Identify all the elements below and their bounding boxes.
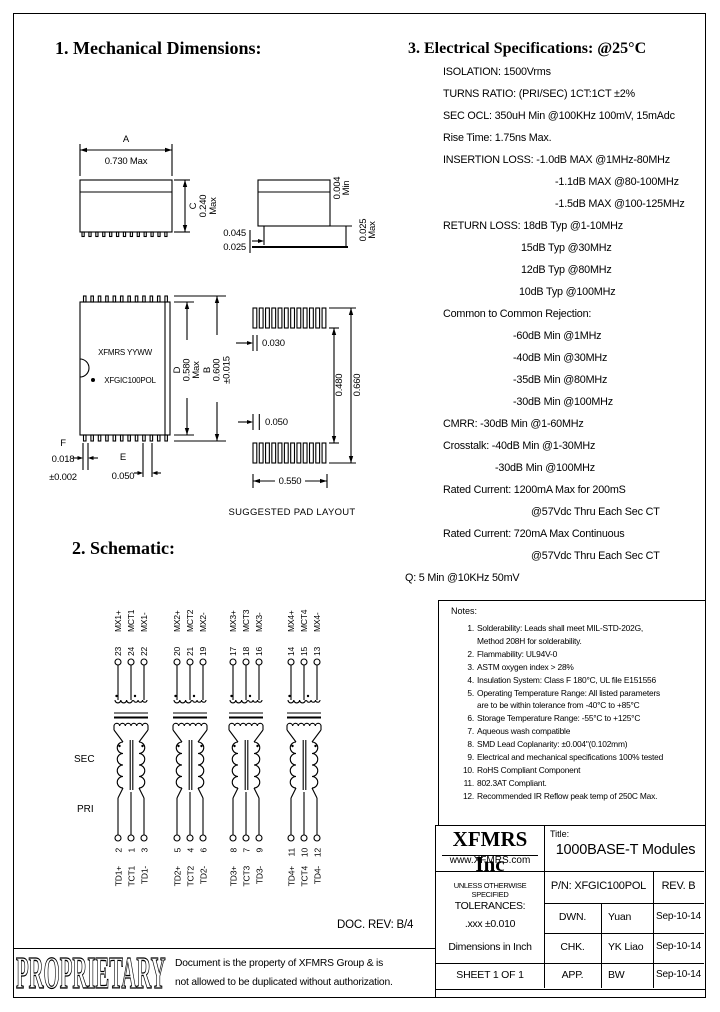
spec-line: Rise Time: 1.75ns Max. [443, 132, 551, 144]
part-marking-line2: XFGIC100POL [104, 376, 156, 385]
spec-line: -40dB Min @30MHz [513, 352, 607, 364]
pin-hatch [117, 232, 119, 237]
pin-hatch [91, 296, 94, 302]
polarity-dot [314, 745, 316, 747]
pin-number: 11 [287, 848, 297, 857]
spec-line: SEC OCL: 350uH Min @100KHz 100mV, 15mAdc [443, 110, 675, 122]
wire [114, 730, 123, 742]
tolerance-note-1: UNLESS OTHERWISE SPECIFIED [436, 881, 544, 899]
pin-hatch [110, 232, 112, 237]
choke-coil [307, 700, 320, 702]
pin-hatch [106, 435, 109, 441]
section-heading-electrical: 3. Electrical Specifications: @25°C [408, 40, 646, 58]
pad-row-bottom [253, 443, 326, 463]
top-view-pins-bottom [84, 435, 168, 441]
pad [322, 308, 326, 328]
wire [254, 788, 259, 798]
note-text: 802.3AT Compliant. [477, 777, 701, 790]
spec-line: TURNS RATIO: (PRI/SEC) 1CT:1CT ±2% [443, 88, 635, 100]
dim-a-value: 0.730 Max [105, 156, 148, 167]
pin-hatch [113, 296, 116, 302]
note-item: 9.Electrical and mechanical specificatio… [457, 751, 701, 764]
spec-line: Crosstalk: -40dB Min @1-30MHz [443, 440, 595, 452]
pin-number: 14 [286, 646, 296, 656]
pin-hatch [106, 296, 109, 302]
dim-f-value: 0.018 [52, 454, 75, 465]
note-text: Insulation System: Class F 180°C, UL fil… [477, 674, 701, 687]
note-text: Solderability: Leads shall meet MIL-STD-… [477, 622, 701, 648]
revision: REV. B [653, 880, 704, 892]
pin-number: 13 [312, 646, 322, 656]
part-number: P/N: XFGIC100POL [544, 880, 653, 892]
pin-label: TCT4 [300, 866, 310, 887]
notes-box: Notes: 1.Solderability: Leads shall meet… [438, 600, 706, 826]
spec-line: -60dB Min @1MHz [513, 330, 601, 342]
company-website: www.XFMRS.com [436, 855, 544, 866]
pin-terminal [174, 659, 180, 665]
pin-hatch [150, 435, 153, 441]
pin-label: MX3+ [228, 610, 238, 632]
front-view-pins [82, 232, 167, 237]
pin-hatch [143, 296, 146, 302]
dim-a-letter: A [123, 134, 130, 145]
polarity-dot [291, 745, 293, 747]
pin-hatch [82, 232, 84, 237]
wire [229, 730, 238, 742]
pin-number: 20 [172, 646, 182, 656]
note-text: SMD Lead Coplanarity: ±0.004"(0.102mm) [477, 738, 701, 751]
wire [177, 788, 182, 798]
title-block: XFMRS Inc www.XFMRS.com Title: 1000BASE-… [435, 825, 706, 990]
pin-hatch [98, 296, 101, 302]
pad [291, 308, 295, 328]
pad-layout-caption: SUGGESTED PAD LAYOUT [228, 507, 355, 518]
secondary-coil [287, 723, 321, 726]
dim-padw-value: 0.030 [262, 338, 285, 349]
dim-leadthk-unit: Max [367, 221, 378, 239]
pin-number: 17 [228, 646, 238, 656]
spec-line: -35dB Min @80MHz [513, 374, 607, 386]
spec-line: -1.5dB MAX @100-125MHz [555, 198, 685, 210]
pin-hatch [91, 435, 94, 441]
proprietary-notice: Document is the property of XFMRS Group … [175, 954, 393, 992]
wire [254, 730, 263, 742]
spec-line: -1.1dB MAX @80-100MHz [555, 176, 679, 188]
pin-number: 12 [313, 848, 323, 858]
dim-c-unit: Max [208, 197, 219, 215]
dwn-name: Yuan [608, 911, 631, 923]
pin-terminal [314, 659, 320, 665]
proprietary-word: PROPRIETARY [16, 950, 166, 996]
schematic-channel: MX4+14MCT415MX4-1311TD4+10TCT412TD4- [286, 609, 323, 886]
note-text: Flammability: UL94V-0 [477, 648, 701, 661]
polarity-dot [249, 695, 251, 697]
doc-rev-text: DOC. REV: B/4 [337, 919, 413, 931]
pin-hatch [165, 232, 167, 237]
transformer-coil [290, 742, 296, 788]
pad [284, 443, 288, 463]
pin-terminal [301, 835, 307, 841]
spec-line: @57Vdc Thru Each Sec CT [531, 506, 660, 518]
pin-terminal [256, 835, 262, 841]
pad [297, 308, 301, 328]
pin-hatch [128, 435, 130, 441]
pri-label: PRI [77, 804, 94, 815]
wire [198, 788, 203, 798]
pin-label: MX2+ [172, 610, 182, 632]
pin-label: MX2- [198, 612, 208, 632]
notes-title: Notes: [451, 606, 477, 616]
spec-line: ISOLATION: 1500Vrms [443, 66, 551, 78]
pin-label: MCT4 [299, 609, 309, 632]
choke-coil [115, 700, 132, 703]
pad [266, 308, 270, 328]
transformer-coil [139, 742, 145, 788]
titleblock-divider [601, 903, 602, 988]
titleblock-divider [436, 963, 704, 964]
note-number: 2. [457, 648, 474, 661]
dwn-date: Sep-10-14 [653, 911, 704, 922]
note-number: 10. [457, 764, 474, 777]
pin-number: 8 [229, 848, 239, 853]
pin-hatch [165, 435, 168, 441]
choke-coil [288, 700, 305, 703]
pin-terminal [230, 659, 236, 665]
pad [303, 308, 307, 328]
pin-hatch [165, 296, 168, 302]
pin-label: MX4- [312, 612, 322, 632]
company-name: XFMRS Inc [436, 827, 544, 877]
secondary-coil [229, 723, 263, 726]
polarity-dot [230, 695, 232, 697]
note-text: Recommended IR Reflow peak temp of 250C … [477, 790, 701, 803]
pin-number: 18 [241, 646, 251, 656]
note-number: 8. [457, 738, 474, 751]
pin-label: TD1+ [114, 866, 124, 886]
chk-name: YK Liao [608, 941, 643, 953]
pin-label: MX4+ [286, 610, 296, 632]
choke-coil [193, 700, 206, 702]
pad [316, 443, 320, 463]
dwn-label: DWN. [544, 911, 601, 923]
pad [278, 308, 282, 328]
note-item: 10.RoHS Compliant Component [457, 764, 701, 777]
pin-number: 3 [140, 848, 150, 853]
pad [303, 443, 307, 463]
note-item: 7.Aqueous wash compatible [457, 725, 701, 738]
pin-number: 1 [127, 848, 137, 853]
pin-terminal [141, 835, 147, 841]
mechanical-drawing: A 0.730 Max C 0.240 Max 0.004 Min 0.025 … [30, 130, 390, 530]
choke-coil [134, 700, 147, 702]
dim-e-letter: E [120, 452, 126, 463]
pin-label: MX1+ [113, 610, 123, 632]
choke-coil [230, 700, 247, 703]
polarity-dot [233, 745, 235, 747]
pin-number: 2 [114, 848, 124, 853]
pin-terminal [128, 835, 134, 841]
dim-e-value: 0.050 [112, 471, 135, 482]
pin-label: TD2+ [173, 866, 183, 886]
wire [139, 730, 148, 742]
spec-line: -30dB Min @100MHz [495, 462, 595, 474]
dim-padpitch-value: 0.050 [265, 417, 288, 428]
dim-b-tol: ±0.015 [222, 356, 233, 384]
pin-label: MX1- [139, 612, 149, 632]
polarity-dot [193, 695, 195, 697]
schematic-drawing: SECPRIMX1+23MCT124MX1-222TD1+1TCT13TD1-M… [60, 580, 360, 920]
note-item: 3.ASTM oxygen index > 28% [457, 661, 701, 674]
polarity-dot [115, 695, 117, 697]
proprietary-line2: not allowed to be duplicated without aut… [175, 973, 393, 992]
front-view: A 0.730 Max C 0.240 Max [80, 134, 219, 237]
pin-terminal [128, 659, 134, 665]
proprietary-line1: Document is the property of XFMRS Group … [175, 954, 393, 973]
spec-line: CMRR: -30dB Min @1-60MHz [443, 418, 584, 430]
note-item: 12.Recommended IR Reflow peak temp of 25… [457, 790, 701, 803]
pin-hatch [96, 232, 98, 237]
dim-d-unit: Max [191, 361, 202, 379]
note-item: 2.Flammability: UL94V-0 [457, 648, 701, 661]
pin-terminal [288, 835, 294, 841]
transformer-coil [176, 742, 182, 788]
top-view: XFMRS YYWW XFGIC100POL D 0.580 Max B 0.6… [49, 296, 232, 483]
transformer-coil [232, 742, 238, 788]
pin-hatch [144, 232, 146, 237]
pin-label: MCT2 [185, 609, 195, 632]
note-number: 7. [457, 725, 474, 738]
app-label: APP. [544, 969, 601, 981]
spec-line: Rated Current: 1200mA Max for 200mS [443, 484, 626, 496]
title-label: Title: [550, 829, 569, 839]
document-title: 1000BASE-T Modules [544, 842, 707, 858]
pin-terminal [115, 659, 121, 665]
note-item: 8.SMD Lead Coplanarity: ±0.004"(0.102mm) [457, 738, 701, 751]
pad-row-top [253, 308, 326, 328]
note-number: 6. [457, 712, 474, 725]
tolerance-note-3: .xxx ±0.010 [436, 918, 544, 930]
pin-label: TD4+ [287, 866, 297, 886]
pin-hatch [135, 296, 138, 302]
pin-hatch [135, 435, 138, 441]
pin-terminal [243, 835, 249, 841]
pin-terminal [200, 835, 206, 841]
pin-hatch [128, 296, 130, 302]
secondary-coil [114, 723, 148, 726]
tolerance-note-4: Dimensions in Inch [436, 941, 544, 953]
note-number: 9. [457, 751, 474, 764]
pin-hatch [103, 232, 105, 237]
polarity-dot [288, 695, 290, 697]
pin-label: TCT2 [186, 866, 196, 887]
pin-terminal [230, 835, 236, 841]
pin-terminal [256, 659, 262, 665]
pad [310, 443, 314, 463]
pin-label: TCT3 [242, 866, 252, 887]
note-item: 11.802.3AT Compliant. [457, 777, 701, 790]
pad [322, 443, 326, 463]
spec-line: INSERTION LOSS: -1.0dB MAX @1MHz-80MHz [443, 154, 670, 166]
wire [287, 730, 296, 742]
pad [272, 308, 276, 328]
pin-hatch [123, 232, 125, 237]
pin-hatch [158, 296, 161, 302]
pin-terminal [200, 659, 206, 665]
pin-hatch [84, 435, 87, 441]
note-text: Electrical and mechanical specifications… [477, 751, 701, 764]
pin-terminal [243, 659, 249, 665]
dim-leadw-value1: 0.045 [223, 228, 246, 239]
section-heading-schematic: 2. Schematic: [72, 538, 175, 559]
tolerance-note-2: TOLERANCES: [436, 900, 544, 912]
part-marking-line1: XFMRS YYWW [98, 348, 153, 357]
choke-coil [174, 700, 191, 703]
wire [312, 730, 321, 742]
notes-list: 1.Solderability: Leads shall meet MIL-ST… [457, 622, 701, 803]
note-text: Storage Temperature Range: -55°C to +125… [477, 712, 701, 725]
spec-line: 10dB Typ @100MHz [519, 286, 615, 298]
note-item: 1.Solderability: Leads shall meet MIL-ST… [457, 622, 701, 648]
secondary-coil [173, 723, 207, 726]
note-number: 11. [457, 777, 474, 790]
note-text: ASTM oxygen index > 28% [477, 661, 701, 674]
pad [291, 443, 295, 463]
dim-padout-value: 0.660 [352, 374, 363, 397]
pin-hatch [151, 232, 153, 237]
titleblock-divider [544, 933, 704, 934]
pin-number: 15 [299, 646, 309, 656]
pad [266, 443, 270, 463]
sheet-number: SHEET 1 OF 1 [436, 969, 544, 981]
datasheet-page: 1. Mechanical Dimensions: A 0.730 Max C … [0, 0, 720, 1012]
pad [253, 308, 257, 328]
chk-label: CHK. [544, 941, 601, 953]
pad [253, 443, 257, 463]
transformer-coil [254, 742, 260, 788]
dim-padspan-value: 0.550 [279, 476, 302, 487]
spec-line: Q: 5 Min @10KHz 50mV [405, 572, 519, 584]
pin-label: MX3- [254, 612, 264, 632]
spec-line: 12dB Typ @80MHz [521, 264, 612, 276]
choke-coil [249, 700, 262, 702]
pin-label: TCT1 [127, 866, 137, 887]
pin-terminal [288, 659, 294, 665]
spec-line: @57Vdc Thru Each Sec CT [531, 550, 660, 562]
pad [278, 443, 282, 463]
note-item: 6.Storage Temperature Range: -55°C to +1… [457, 712, 701, 725]
polarity-dot [177, 745, 179, 747]
polarity-dot [134, 695, 136, 697]
pad-layout: 0.030 0.050 0.480 0.660 0.550 [228, 308, 363, 518]
pin-hatch [137, 232, 139, 237]
pin-number: 10 [300, 848, 310, 858]
note-item: 4.Insulation System: Class F 180°C, UL f… [457, 674, 701, 687]
spec-line: 15dB Typ @30MHz [521, 242, 612, 254]
wire [198, 730, 207, 742]
dim-leadw-value2: 0.025 [223, 242, 246, 253]
pin-hatch [130, 232, 132, 237]
pin-number: 16 [254, 646, 264, 656]
pin-hatch [98, 435, 101, 441]
pin-number: 4 [186, 848, 196, 853]
note-item: 5.Operating Temperature Range: All liste… [457, 687, 701, 713]
titleblock-divider [544, 903, 704, 904]
app-date: Sep-10-14 [653, 969, 704, 980]
transformer-coil [117, 742, 123, 788]
note-text: Aqueous wash compatible [477, 725, 701, 738]
chk-date: Sep-10-14 [653, 941, 704, 952]
pin-hatch [113, 435, 116, 441]
polarity-dot [256, 745, 258, 747]
schematic-channel: MX3+17MCT318MX3-168TD3+7TCT39TD3- [228, 609, 265, 886]
pin-number: 19 [198, 646, 208, 656]
polarity-dot [174, 695, 176, 697]
note-number: 5. [457, 687, 474, 713]
pin-label: TD4- [313, 866, 323, 884]
note-number: 4. [457, 674, 474, 687]
pin-hatch [121, 435, 124, 441]
pin-number: 21 [185, 646, 195, 656]
pin1-dot [91, 378, 95, 382]
pad [297, 443, 301, 463]
pin-terminal [141, 659, 147, 665]
note-text: Operating Temperature Range: All listed … [477, 687, 701, 713]
pin-number: 5 [173, 848, 183, 853]
pad [310, 308, 314, 328]
transformer-coil [312, 742, 318, 788]
polarity-dot [118, 745, 120, 747]
pin-hatch [158, 232, 160, 237]
wire [173, 730, 182, 742]
dim-standoff-unit: Min [341, 181, 352, 196]
sec-label: SEC [74, 754, 95, 765]
pin1-notch [80, 359, 89, 377]
side-view: 0.004 Min 0.025 Max 0.045 0.025 [223, 177, 378, 253]
pin-label: TD3- [255, 866, 265, 884]
note-number: 1. [457, 622, 474, 648]
polarity-dot [307, 695, 309, 697]
spec-line: RETURN LOSS: 18dB Typ @1-10MHz [443, 220, 623, 232]
pin-terminal [115, 835, 121, 841]
wire [139, 788, 144, 798]
proprietary-strip: PROPRIETARY Document is the property of … [13, 948, 436, 998]
pin-number: 6 [199, 848, 209, 853]
pad [272, 443, 276, 463]
note-text: RoHS Compliant Component [477, 764, 701, 777]
pin-terminal [174, 835, 180, 841]
pin-terminal [187, 835, 193, 841]
pin-hatch [150, 296, 153, 302]
dim-f-tol: ±0.002 [49, 472, 77, 483]
pin-hatch [143, 435, 146, 441]
polarity-dot [200, 745, 202, 747]
note-number: 3. [457, 661, 474, 674]
wire [233, 788, 238, 798]
pin-label: MCT3 [241, 609, 251, 632]
pin-number: 7 [242, 848, 252, 853]
pin-hatch [158, 435, 161, 441]
pin-label: TD2- [199, 866, 209, 884]
transformer-coil [198, 742, 204, 788]
pin-hatch [121, 296, 124, 302]
schematic-channel: MX1+23MCT124MX1-222TD1+1TCT13TD1- [113, 609, 150, 886]
app-name: BW [608, 969, 625, 981]
pin-number: 9 [255, 848, 265, 853]
pin-terminal [314, 835, 320, 841]
wire [312, 788, 317, 798]
wire [291, 788, 296, 798]
polarity-dot [141, 745, 143, 747]
